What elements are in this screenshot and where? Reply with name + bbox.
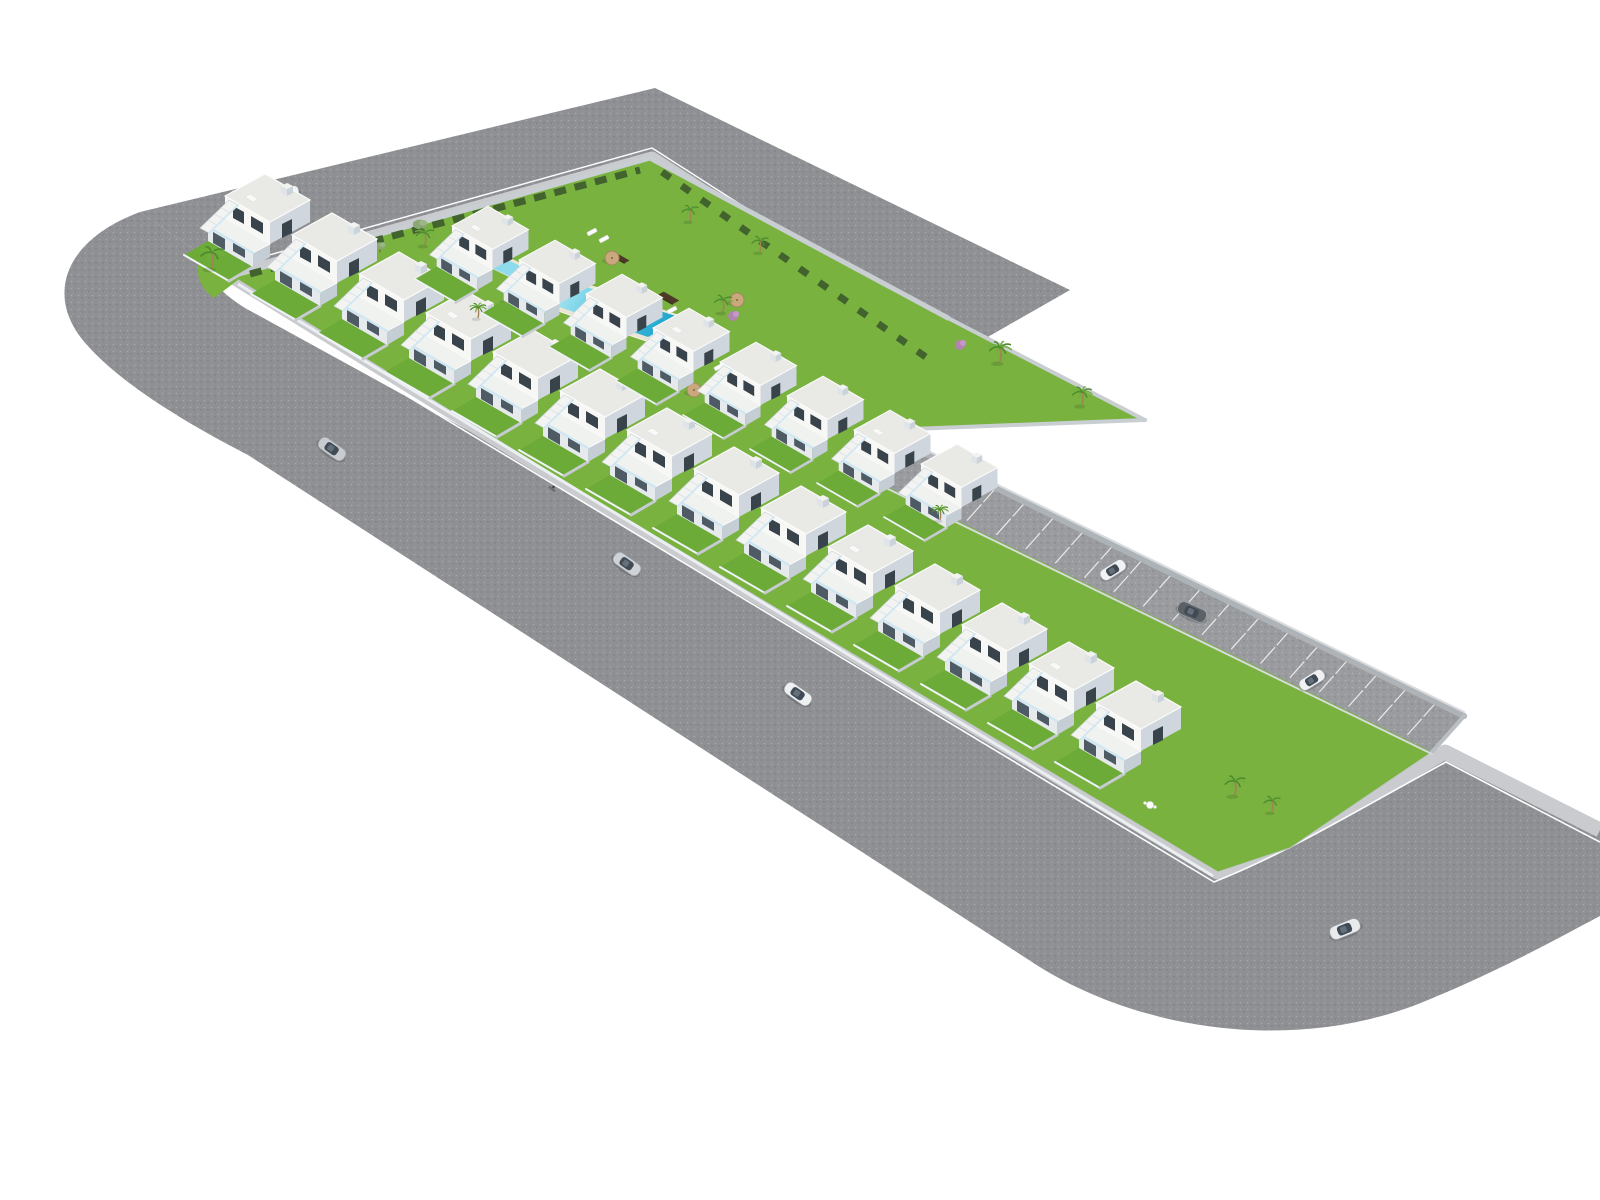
palm-shadow [753, 252, 763, 256]
architectural-render [0, 0, 1600, 1200]
parasol-pole [736, 299, 738, 301]
palm-shadow [203, 268, 216, 273]
patio-table [1147, 802, 1154, 809]
render-canvas [0, 0, 1600, 1200]
palm-trunk [1000, 348, 1001, 362]
palm-trunk [760, 241, 761, 252]
olive-canopy [419, 220, 427, 226]
palm-trunk [690, 210, 691, 221]
palm-shadow [716, 312, 727, 316]
palm-shadow [683, 221, 693, 225]
parasol-pole [693, 389, 695, 391]
palm-trunk [1082, 392, 1083, 405]
palm-trunk [940, 510, 941, 520]
palm-trunk [723, 300, 724, 312]
palm-trunk [478, 308, 479, 318]
patio-chair [1153, 805, 1156, 808]
palm-shadow [1074, 405, 1085, 409]
parasol-pole [611, 257, 613, 259]
palm-trunk [425, 233, 426, 245]
patio-chair [1143, 801, 1146, 804]
palm-shadow [1265, 812, 1275, 816]
palm-shadow [418, 245, 429, 249]
bush-bloom [733, 311, 739, 317]
olive-canopy [379, 243, 385, 247]
palm-shadow [472, 318, 481, 321]
bush-bloom [960, 340, 966, 346]
palm-shadow [991, 362, 1004, 367]
palm-shadow [934, 520, 943, 523]
palm-shadow [1227, 795, 1239, 799]
palm-trunk [212, 253, 213, 268]
palm-trunk [1235, 781, 1236, 795]
palm-trunk [1272, 801, 1273, 812]
